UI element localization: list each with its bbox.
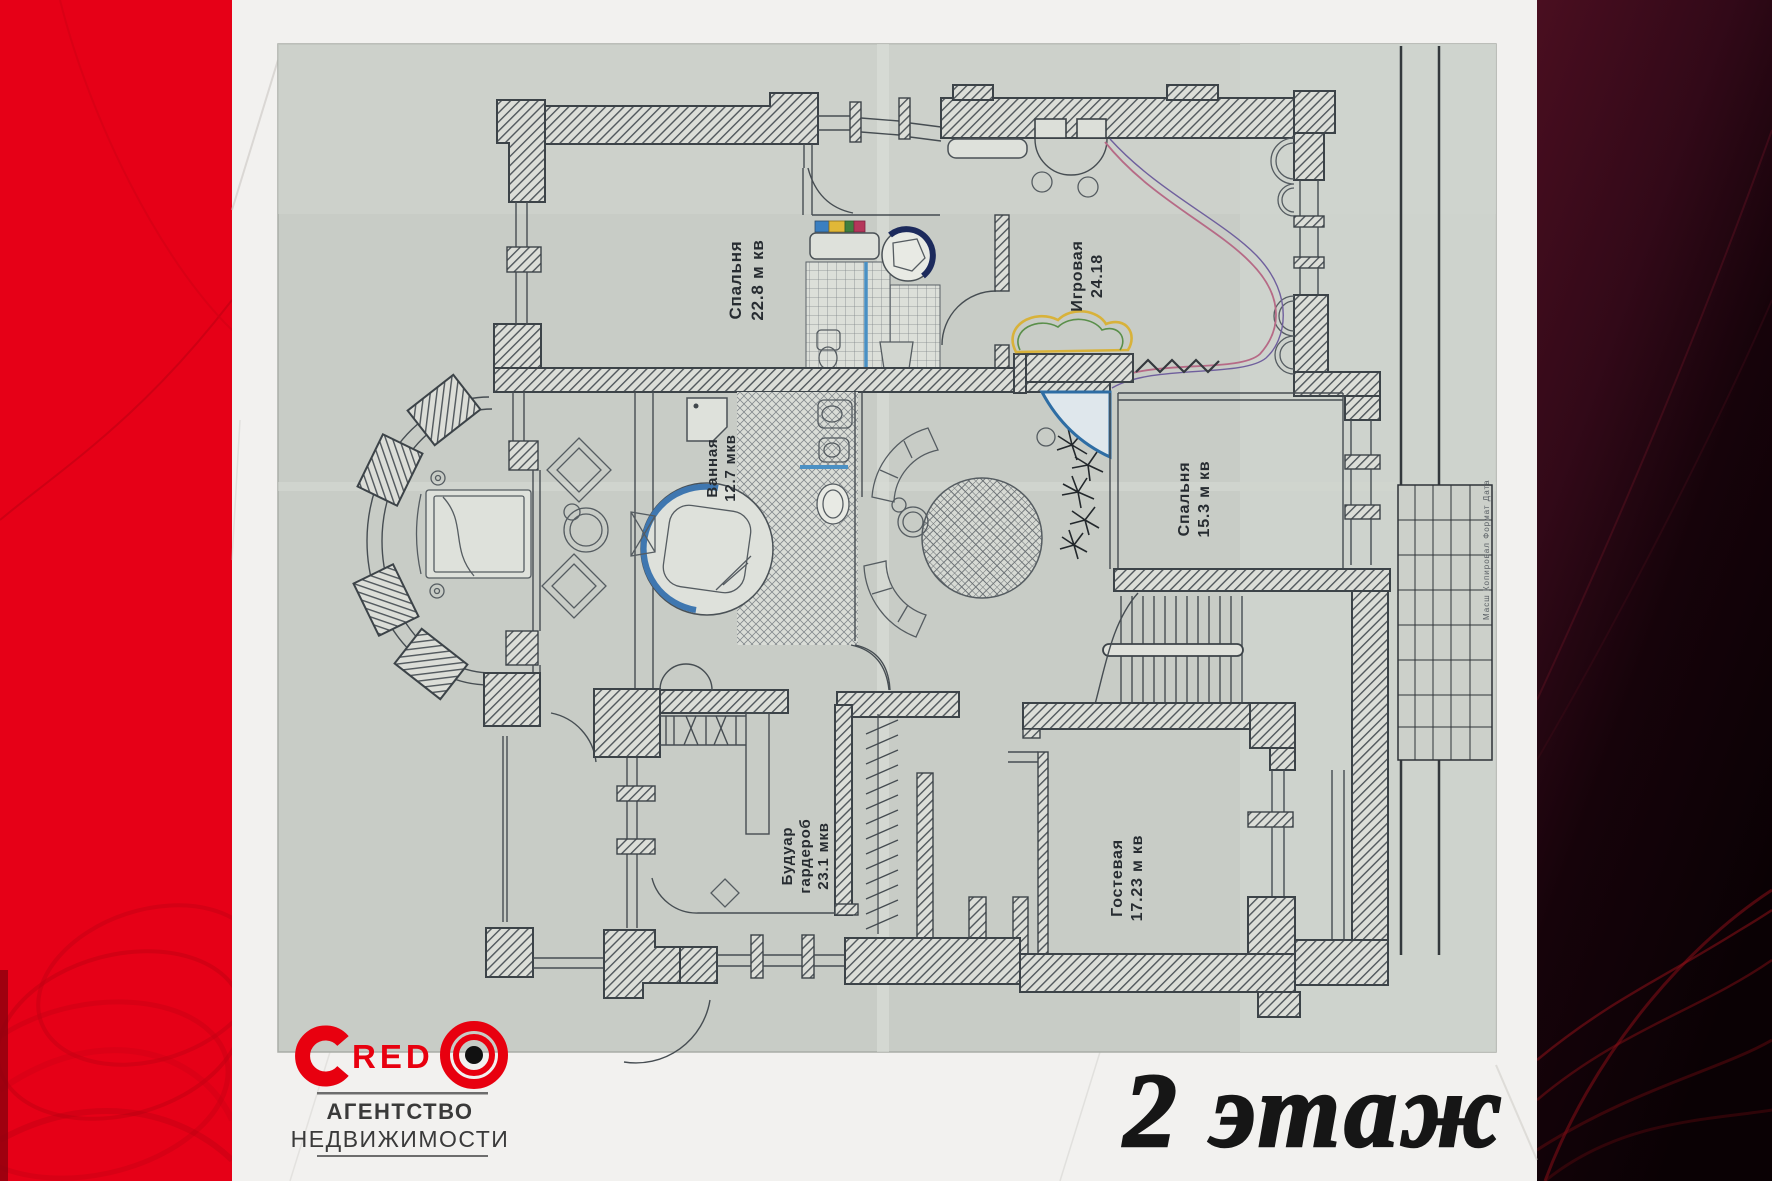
svg-text:НЕДВИЖИМОСТИ: НЕДВИЖИМОСТИ <box>291 1126 510 1152</box>
svg-text:15.3 м кв: 15.3 м кв <box>1196 461 1213 538</box>
svg-text:Игровая: Игровая <box>1069 240 1086 311</box>
svg-text:17.23 м кв: 17.23 м кв <box>1129 835 1146 922</box>
svg-text:RED: RED <box>352 1038 434 1075</box>
svg-text:Масш Копировал Формат Дата: Масш Копировал Формат Дата <box>1482 479 1491 620</box>
svg-text:Спальня: Спальня <box>1176 462 1193 537</box>
svg-text:23.1 мкв: 23.1 мкв <box>815 822 832 890</box>
svg-text:Ванная: Ванная <box>704 438 721 497</box>
svg-text:2 этаж: 2 этаж <box>1122 1052 1506 1169</box>
svg-text:гардероб: гардероб <box>797 818 814 893</box>
svg-text:22.8 м кв: 22.8 м кв <box>748 239 767 320</box>
svg-text:Гостевая: Гостевая <box>1109 839 1126 917</box>
svg-text:Будуар: Будуар <box>779 827 796 886</box>
svg-text:АГЕНТСТВО: АГЕНТСТВО <box>326 1099 473 1124</box>
svg-text:24.18: 24.18 <box>1089 254 1106 298</box>
svg-text:Спальня: Спальня <box>726 240 745 319</box>
svg-text:12.7 мкв: 12.7 мкв <box>722 434 739 502</box>
